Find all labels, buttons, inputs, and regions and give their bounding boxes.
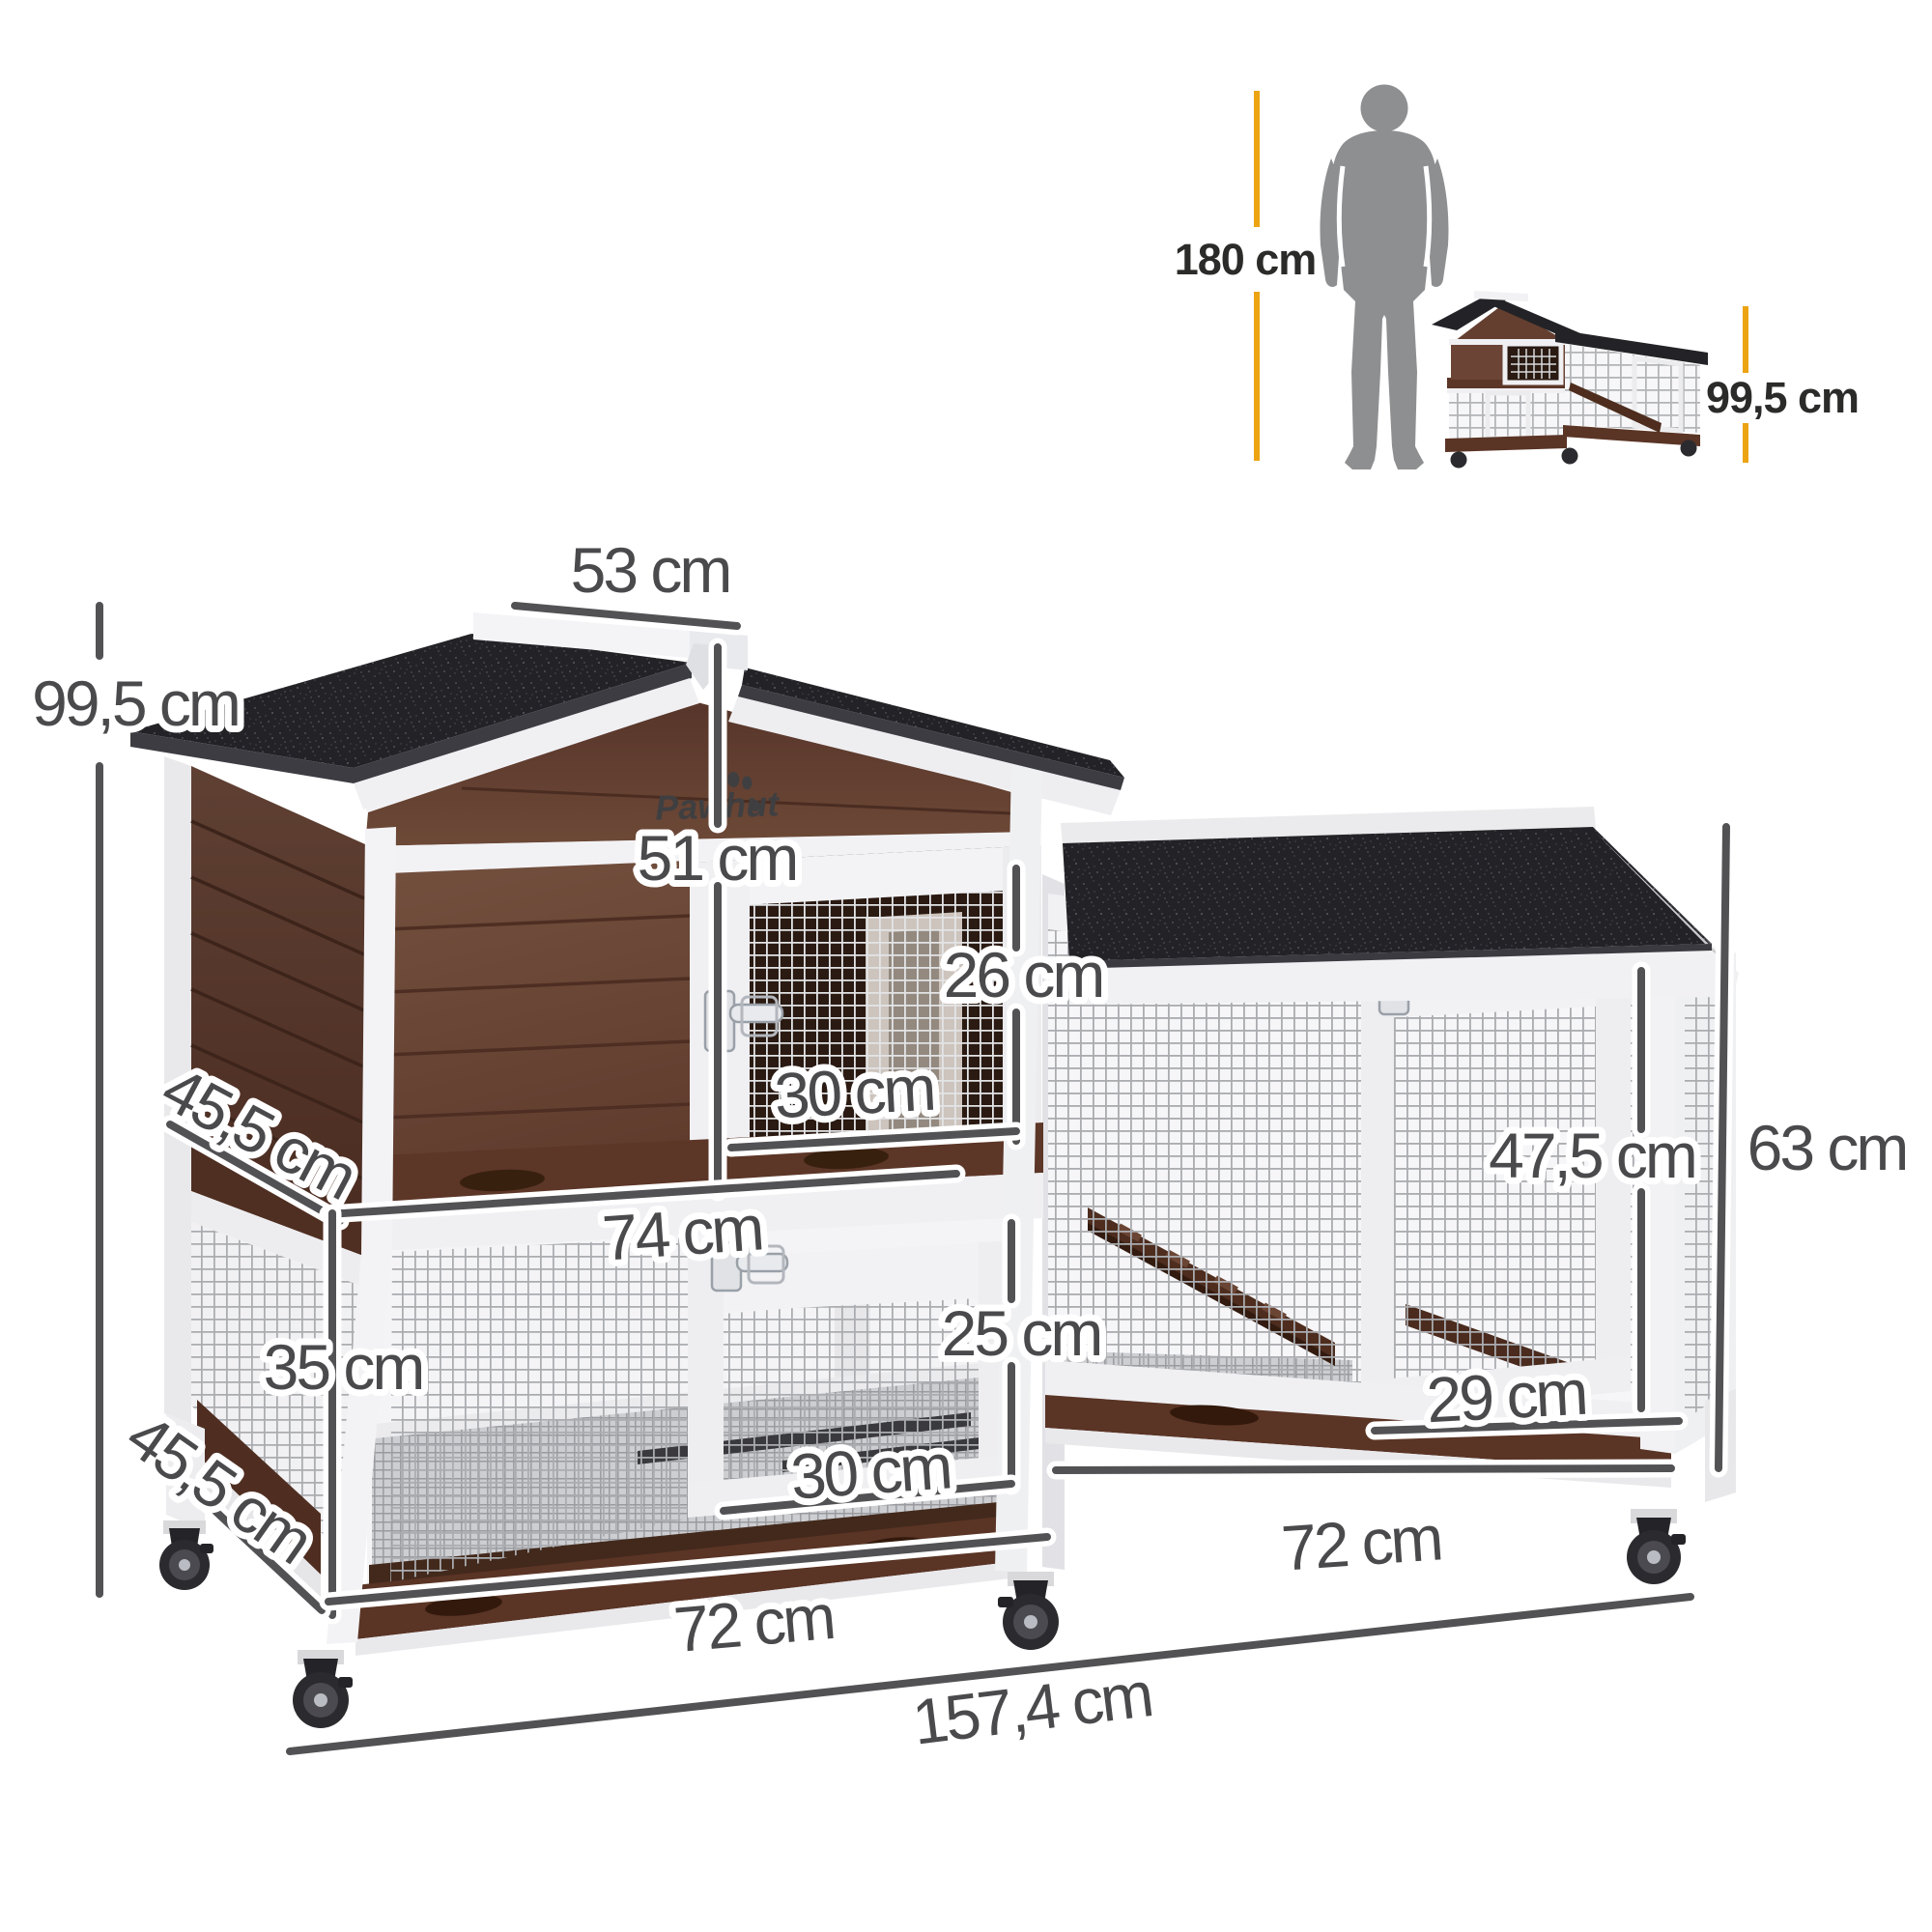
svg-text:63 cm: 63 cm [1747,1112,1907,1183]
svg-text:30 cm: 30 cm [788,1430,952,1512]
svg-text:26 cm: 26 cm [944,939,1103,1010]
svg-text:51 cm: 51 cm [638,822,797,894]
svg-text:35 cm: 35 cm [264,1331,423,1403]
svg-text:25 cm: 25 cm [942,1297,1101,1369]
svg-text:74 cm: 74 cm [600,1191,763,1273]
svg-text:99,5 cm: 99,5 cm [1706,373,1859,422]
svg-text:99,5 cm: 99,5 cm [32,668,239,739]
svg-text:30 cm: 30 cm [773,1052,935,1132]
svg-text:72 cm: 72 cm [1279,1501,1442,1583]
svg-text:29 cm: 29 cm [1425,1356,1587,1436]
svg-text:53 cm: 53 cm [571,534,730,606]
svg-text:72 cm: 72 cm [671,1580,837,1665]
svg-text:180 cm: 180 cm [1175,235,1317,284]
svg-text:47,5 cm: 47,5 cm [1489,1120,1695,1191]
